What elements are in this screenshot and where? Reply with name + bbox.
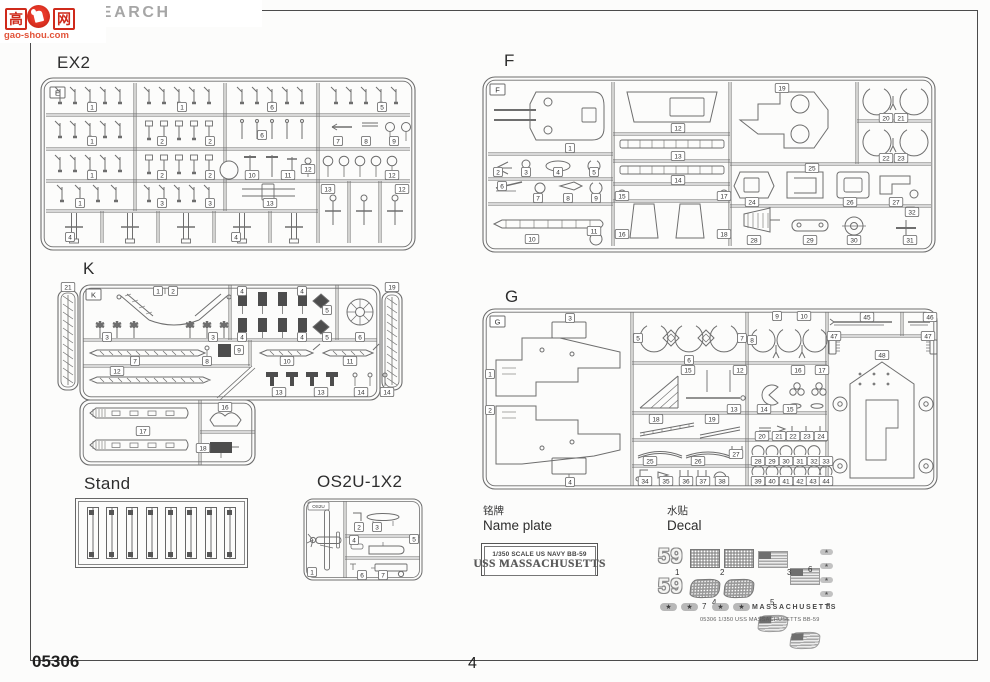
- part-number-tag: 40: [765, 476, 779, 485]
- svg-text:14: 14: [760, 407, 768, 414]
- svg-text:24: 24: [817, 434, 825, 441]
- thumbs-up-emblem-icon: [27, 5, 50, 28]
- svg-text:46: 46: [926, 315, 934, 322]
- svg-text:11: 11: [285, 173, 292, 180]
- part-number-tag: 6: [268, 102, 277, 111]
- part-number-tag: 32: [807, 456, 821, 465]
- svg-text:11: 11: [347, 359, 354, 366]
- part-number-tag: 5: [410, 534, 419, 543]
- svg-text:4: 4: [568, 480, 572, 487]
- part-number-tag: 10: [245, 170, 259, 179]
- svg-text:21: 21: [897, 116, 905, 123]
- sprue-e-diagram: E 116512267891221011121213313441312: [40, 77, 416, 251]
- svg-text:29: 29: [806, 238, 814, 245]
- part-number-tag: 12: [385, 170, 399, 179]
- svg-text:9: 9: [237, 348, 241, 355]
- part-number-tag: 3: [522, 167, 531, 176]
- svg-text:4: 4: [68, 235, 72, 242]
- svg-text:17: 17: [818, 368, 826, 375]
- part-number-tag: 8: [748, 335, 757, 344]
- svg-text:16: 16: [618, 232, 626, 239]
- svg-text:27: 27: [892, 200, 900, 207]
- svg-text:38: 38: [718, 479, 726, 486]
- svg-text:8: 8: [750, 338, 754, 345]
- svg-text:28: 28: [750, 238, 758, 245]
- part-number-tag: 11: [281, 170, 295, 179]
- decal-number-3: 3: [787, 568, 791, 577]
- part-number-tag: 25: [805, 163, 819, 172]
- svg-text:9: 9: [392, 139, 396, 146]
- svg-text:12: 12: [674, 126, 682, 133]
- part-number-tag: 3: [566, 313, 575, 322]
- svg-text:5: 5: [636, 336, 640, 343]
- part-number-tag: 1: [178, 102, 187, 111]
- part-number-tag: 7: [379, 570, 388, 579]
- part-number-tag: 13: [314, 387, 328, 396]
- svg-text:10: 10: [283, 359, 291, 366]
- stand-slat: [106, 507, 118, 559]
- section-title-k: K: [83, 259, 95, 279]
- part-number-tag: 21: [772, 431, 786, 440]
- part-number-tag: 10: [797, 311, 811, 320]
- part-number-tag: 19: [705, 414, 719, 423]
- svg-text:35: 35: [662, 479, 670, 486]
- nameplate-line1: 1/350 SCALE US NAVY BB-59: [492, 551, 586, 558]
- part-number-tag: 18: [196, 443, 210, 452]
- part-number-tag: 26: [691, 456, 705, 465]
- svg-text:1: 1: [568, 146, 572, 153]
- part-number-tag: 22: [879, 153, 893, 162]
- part-number-tag: 1: [486, 369, 495, 378]
- part-number-tag: 2: [169, 286, 178, 295]
- page-number: 4: [468, 655, 477, 673]
- svg-text:27: 27: [732, 452, 740, 459]
- svg-text:48: 48: [878, 353, 886, 360]
- svg-text:3: 3: [160, 201, 164, 208]
- svg-text:2: 2: [496, 170, 500, 177]
- svg-text:19: 19: [708, 417, 716, 424]
- part-number-tag: 29: [765, 456, 779, 465]
- svg-text:15: 15: [684, 368, 692, 375]
- svg-text:17: 17: [720, 194, 728, 201]
- svg-text:24: 24: [748, 200, 756, 207]
- svg-text:31: 31: [796, 459, 804, 466]
- part-number-tag: 2: [158, 136, 167, 145]
- part-number-tag: 7: [534, 193, 543, 202]
- svg-text:8: 8: [566, 196, 570, 203]
- part-number-tag: 16: [615, 229, 629, 238]
- part-number-tag: 7: [334, 136, 343, 145]
- part-number-tag: 19: [775, 83, 789, 92]
- svg-text:37: 37: [699, 479, 707, 486]
- svg-text:42: 42: [796, 479, 804, 486]
- part-number-tag: 2: [158, 170, 167, 179]
- svg-text:13: 13: [674, 154, 682, 161]
- part-number-tag: 30: [779, 456, 793, 465]
- part-number-tag: 4: [566, 477, 575, 486]
- part-number-tag: 14: [380, 387, 394, 396]
- part-number-tag: 2: [494, 167, 503, 176]
- logo-cn-right-box: 网: [53, 8, 75, 30]
- section-title-f: F: [504, 51, 515, 71]
- svg-text:4: 4: [556, 170, 560, 177]
- part-number-tag: 4: [232, 232, 241, 241]
- svg-text:29: 29: [768, 459, 776, 466]
- svg-text:10: 10: [528, 237, 536, 244]
- part-number-tag: 13: [671, 151, 685, 160]
- part-number-tag: 45: [860, 312, 874, 321]
- sprue-letter-f: F: [495, 86, 500, 95]
- decal-small-star-roundel-icon: [820, 577, 833, 583]
- part-number-tag: 30: [847, 235, 861, 244]
- svg-text:1: 1: [90, 173, 94, 180]
- part-number-tag: 21: [894, 113, 908, 122]
- part-number-tag: 11: [587, 226, 601, 235]
- part-number-tag: 13: [263, 198, 277, 207]
- decal-label-cn: 水贴: [667, 503, 688, 518]
- svg-text:3: 3: [524, 170, 528, 177]
- section-title-os2u: OS2U-1X2: [317, 472, 402, 492]
- part-number-tag: 15: [615, 191, 629, 200]
- part-number-tag: 5: [323, 305, 332, 314]
- part-number-tag: 5: [590, 167, 599, 176]
- svg-text:19: 19: [388, 285, 396, 292]
- svg-text:28: 28: [754, 459, 762, 466]
- nameplate-inner: 1/350 SCALE US NAVY BB-59 USS MASSACHUSE…: [484, 546, 596, 576]
- part-number-tag: 19: [385, 282, 399, 291]
- part-number-tag: 1: [308, 567, 317, 576]
- stand-slat: [165, 507, 177, 559]
- decal-star-field: [690, 549, 720, 568]
- part-number-tag: 26: [843, 197, 857, 206]
- part-number-tag: 4: [238, 286, 247, 295]
- svg-text:45: 45: [863, 315, 871, 322]
- watermark-site-text: gao-shou.com: [4, 30, 69, 41]
- svg-text:1: 1: [78, 201, 82, 208]
- sprue-k-diagram: K 21191233444455678910111213131414171618: [55, 280, 405, 470]
- svg-text:7: 7: [381, 573, 385, 580]
- part-number-tag: 38: [715, 476, 729, 485]
- part-number-tag: 39: [751, 476, 765, 485]
- svg-text:1: 1: [488, 372, 492, 379]
- decal-hull-number: 59: [658, 546, 683, 567]
- part-number-tag: 20: [879, 113, 893, 122]
- decal-label-en: Decal: [667, 518, 702, 533]
- svg-text:5: 5: [325, 308, 329, 315]
- svg-text:12: 12: [113, 369, 121, 376]
- svg-text:22: 22: [789, 434, 797, 441]
- part-number-tag: 12: [110, 366, 124, 375]
- part-number-tag: 6: [356, 332, 365, 341]
- svg-text:9: 9: [775, 314, 779, 321]
- part-number-tag: 42: [793, 476, 807, 485]
- decal-star-roundel-icon: [681, 603, 698, 611]
- part-number-tag: 6: [685, 355, 694, 364]
- part-number-tag: 32: [905, 207, 919, 216]
- stand-slat: [146, 507, 158, 559]
- svg-text:15: 15: [786, 407, 794, 414]
- svg-text:5: 5: [380, 105, 384, 112]
- svg-text:26: 26: [694, 459, 702, 466]
- svg-text:15: 15: [618, 194, 626, 201]
- part-number-tag: 12: [395, 184, 409, 193]
- svg-text:44: 44: [822, 479, 830, 486]
- part-number-tag: 18: [717, 229, 731, 238]
- svg-text:5: 5: [412, 537, 416, 544]
- svg-text:5: 5: [325, 335, 329, 342]
- part-number-tag: 5: [323, 332, 332, 341]
- svg-text:10: 10: [248, 173, 256, 180]
- part-number-tag: 37: [696, 476, 710, 485]
- part-number-tag: 13: [272, 387, 286, 396]
- svg-text:3: 3: [208, 201, 212, 208]
- part-number-tag: 15: [681, 365, 695, 374]
- part-number-tag: 8: [362, 136, 371, 145]
- part-number-tag: 36: [679, 476, 693, 485]
- part-number-tag: 43: [806, 476, 820, 485]
- part-number-tag: 25: [643, 456, 657, 465]
- svg-text:23: 23: [897, 156, 905, 163]
- part-number-tag: 24: [814, 431, 828, 440]
- part-number-tag: 3: [206, 198, 215, 207]
- svg-text:13: 13: [317, 390, 325, 397]
- svg-text:32: 32: [908, 210, 916, 217]
- svg-text:30: 30: [850, 238, 858, 245]
- part-number-tag: 14: [757, 404, 771, 413]
- part-number-tag: 16: [791, 365, 805, 374]
- part-number-tag: 4: [554, 167, 563, 176]
- svg-text:10: 10: [800, 314, 808, 321]
- part-number-tag: 14: [354, 387, 368, 396]
- decal-small-star-roundel-icon: [820, 563, 833, 569]
- svg-text:26: 26: [846, 200, 854, 207]
- decal-number-1: 1: [675, 568, 679, 577]
- svg-text:4: 4: [240, 289, 244, 296]
- part-number-tag: 13: [727, 404, 741, 413]
- svg-text:16: 16: [794, 368, 802, 375]
- svg-text:20: 20: [758, 434, 766, 441]
- decal-star-field-wavy: [723, 578, 755, 598]
- part-number-tag: 8: [203, 356, 212, 365]
- svg-text:13: 13: [266, 201, 274, 208]
- part-number-tag: 28: [751, 456, 765, 465]
- part-number-tag: 2: [206, 170, 215, 179]
- part-number-tag: 16: [218, 402, 232, 411]
- svg-text:4: 4: [352, 538, 356, 545]
- decal-small-star-roundel-icon: [820, 549, 833, 555]
- svg-text:4: 4: [300, 335, 304, 342]
- part-number-tag: 31: [903, 235, 917, 244]
- instruction-sheet-page: { "page": { "footer_code": "05306", "pag…: [0, 0, 990, 682]
- svg-text:2: 2: [488, 408, 492, 415]
- svg-text:6: 6: [270, 105, 274, 112]
- decal-footnote: 05306 1/350 USS MASSACHUSETTS BB-59: [700, 617, 820, 623]
- svg-text:13: 13: [275, 390, 283, 397]
- logo-cn-left-box: 高: [5, 8, 27, 30]
- part-number-tag: 2: [206, 136, 215, 145]
- sprue-f-diagram: F 12345678910111213141517161819202122232…: [482, 76, 936, 253]
- svg-text:14: 14: [383, 390, 391, 397]
- svg-text:8: 8: [205, 359, 209, 366]
- svg-text:2: 2: [160, 173, 164, 180]
- stand-diagram: [75, 498, 248, 568]
- part-number-tag: 23: [894, 153, 908, 162]
- svg-text:2: 2: [357, 525, 361, 532]
- stand-slat: [126, 507, 138, 559]
- stand-slat: [224, 507, 236, 559]
- svg-text:9: 9: [594, 196, 598, 203]
- part-number-tag: 44: [819, 476, 833, 485]
- svg-text:6: 6: [260, 133, 264, 140]
- svg-text:14: 14: [357, 390, 365, 397]
- sprue-letter-os2u: OS2U: [312, 504, 325, 509]
- svg-text:18: 18: [652, 417, 660, 424]
- svg-text:21: 21: [64, 285, 72, 292]
- part-number-tag: 9: [773, 311, 782, 320]
- part-number-tag: 13: [321, 184, 335, 193]
- sprue-letter-g: G: [495, 318, 501, 327]
- svg-text:13: 13: [324, 187, 332, 194]
- svg-text:25: 25: [808, 166, 816, 173]
- svg-text:39: 39: [754, 479, 762, 486]
- svg-text:3: 3: [105, 335, 109, 342]
- svg-text:1: 1: [90, 139, 94, 146]
- svg-text:16: 16: [221, 405, 229, 412]
- part-number-tag: 47: [827, 331, 841, 340]
- svg-text:7: 7: [133, 359, 137, 366]
- svg-text:12: 12: [304, 167, 312, 174]
- svg-text:13: 13: [730, 407, 738, 414]
- stand-slat: [205, 507, 217, 559]
- svg-text:1: 1: [90, 105, 94, 112]
- part-number-tag: 9: [235, 345, 244, 354]
- svg-text:33: 33: [822, 459, 830, 466]
- part-number-tag: 31: [793, 456, 807, 465]
- part-number-tag: 12: [671, 123, 685, 132]
- part-number-tag: 1: [88, 102, 97, 111]
- part-number-tag: 6: [358, 570, 367, 579]
- part-number-tag: 12: [733, 365, 747, 374]
- part-number-tag: 5: [378, 102, 387, 111]
- nameplate-label-cn: 铭牌: [483, 503, 504, 518]
- svg-text:7: 7: [536, 196, 540, 203]
- section-title-stand: Stand: [84, 474, 130, 494]
- part-number-tag: 17: [717, 191, 731, 200]
- part-number-tag: 18: [649, 414, 663, 423]
- part-number-tag: 9: [390, 136, 399, 145]
- svg-text:43: 43: [809, 479, 817, 486]
- part-number-tag: 12: [301, 164, 315, 173]
- part-number-tag: 17: [815, 365, 829, 374]
- part-number-tag: 20: [755, 431, 769, 440]
- part-number-tag: 3: [103, 332, 112, 341]
- part-number-tag: 4: [350, 535, 359, 544]
- part-number-tag: 47: [921, 331, 935, 340]
- decal-us-flag: [790, 568, 820, 585]
- sprue-letter-k: K: [91, 291, 96, 300]
- part-number-tag: 27: [889, 197, 903, 206]
- sprue-g-diagram: G 31245678910151213161714151819202122232…: [482, 308, 938, 490]
- part-number-tag: 27: [729, 449, 743, 458]
- decal-number-6: 6: [808, 565, 812, 574]
- part-number-tag: 15: [783, 404, 797, 413]
- part-number-tag: 1: [154, 286, 163, 295]
- decal-ship-name: MASSACHUSETTS: [752, 604, 837, 611]
- decal-us-flag-wavy: [789, 631, 821, 649]
- stand-slat: [87, 507, 99, 559]
- svg-text:34: 34: [641, 479, 649, 486]
- part-number-tag: 21: [61, 282, 75, 291]
- decal-hull-number: 59: [658, 576, 683, 597]
- part-number-tag: 17: [136, 426, 150, 435]
- part-number-tag: 10: [280, 356, 294, 365]
- svg-text:3: 3: [568, 316, 572, 323]
- part-number-tag: 6: [258, 130, 267, 139]
- svg-text:1: 1: [310, 570, 314, 577]
- svg-text:40: 40: [768, 479, 776, 486]
- svg-text:7: 7: [336, 139, 340, 146]
- part-number-tag: 5: [634, 333, 643, 342]
- part-number-tag: 2: [355, 522, 364, 531]
- svg-text:12: 12: [398, 187, 406, 194]
- svg-text:22: 22: [882, 156, 890, 163]
- svg-text:4: 4: [300, 289, 304, 296]
- decal-star-roundel-icon: [660, 603, 677, 611]
- part-number-tag: 35: [659, 476, 673, 485]
- svg-text:1: 1: [180, 105, 184, 112]
- stand-slat: [185, 507, 197, 559]
- part-number-tag: 9: [592, 193, 601, 202]
- svg-text:36: 36: [682, 479, 690, 486]
- part-number-tag: 33: [819, 456, 833, 465]
- decal-number-2: 2: [720, 568, 724, 577]
- svg-text:11: 11: [591, 229, 598, 236]
- part-number-tag: 29: [803, 235, 817, 244]
- kit-number: 05306: [32, 652, 79, 672]
- nameplate-line2: USS MASSACHUSETTS: [473, 558, 605, 570]
- decal-star-roundel-icon: [733, 603, 750, 611]
- part-number-tag: 46: [923, 312, 937, 321]
- svg-text:25: 25: [646, 459, 654, 466]
- part-number-tag: 4: [298, 332, 307, 341]
- part-number-tag: 4: [238, 332, 247, 341]
- part-number-tag: 1: [566, 143, 575, 152]
- svg-text:12: 12: [736, 368, 744, 375]
- svg-text:6: 6: [687, 358, 691, 365]
- svg-text:14: 14: [674, 178, 682, 185]
- section-title-g: G: [505, 287, 519, 307]
- part-number-tag: 2: [486, 405, 495, 414]
- part-number-tag: 3: [209, 332, 218, 341]
- part-number-tag: 4: [66, 232, 75, 241]
- part-number-tag: 14: [671, 175, 685, 184]
- svg-text:3: 3: [375, 525, 379, 532]
- svg-text:2: 2: [160, 139, 164, 146]
- stand-inner-frame: [78, 501, 245, 565]
- part-number-tag: 3: [158, 198, 167, 207]
- part-number-tag: 11: [343, 356, 357, 365]
- part-number-tag: 23: [800, 431, 814, 440]
- svg-text:41: 41: [782, 479, 790, 486]
- svg-text:4: 4: [240, 335, 244, 342]
- part-number-tag: 8: [564, 193, 573, 202]
- part-number-tag: 1: [76, 198, 85, 207]
- svg-text:4: 4: [234, 235, 238, 242]
- svg-text:1: 1: [156, 289, 160, 296]
- part-number-tag: 10: [525, 234, 539, 243]
- part-number-tag: 4: [298, 286, 307, 295]
- part-number-tag: 22: [786, 431, 800, 440]
